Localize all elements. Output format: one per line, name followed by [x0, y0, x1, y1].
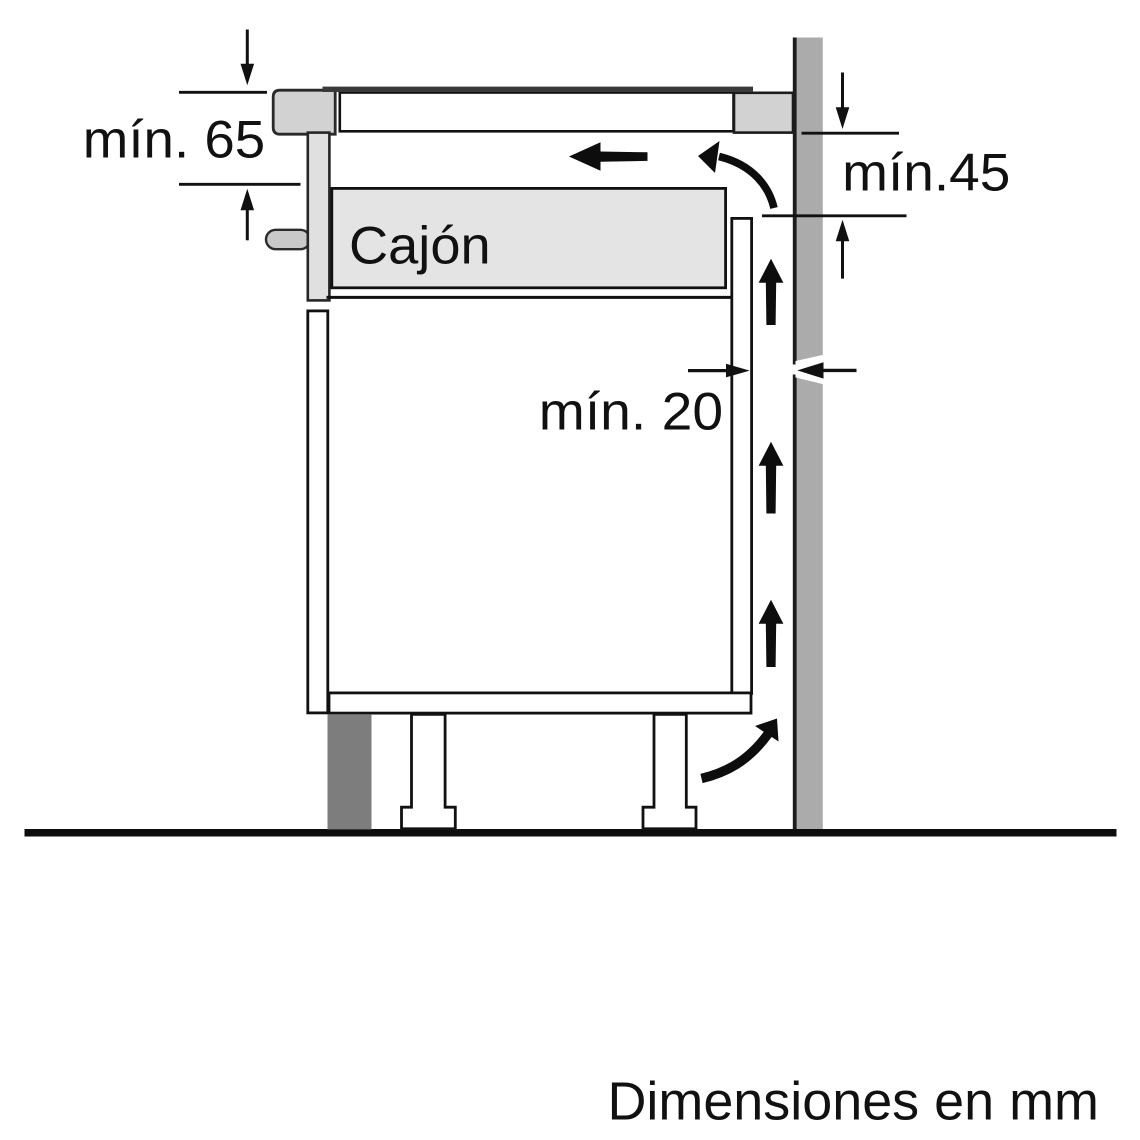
svg-text:mín.45: mín.45 — [842, 144, 1010, 203]
svg-text:mín. 65: mín. 65 — [83, 111, 265, 170]
svg-text:Cajón: Cajón — [349, 217, 491, 276]
svg-text:Dimensiones en mm: Dimensiones en mm — [608, 1072, 1099, 1131]
svg-text:mín. 20: mín. 20 — [539, 383, 723, 442]
